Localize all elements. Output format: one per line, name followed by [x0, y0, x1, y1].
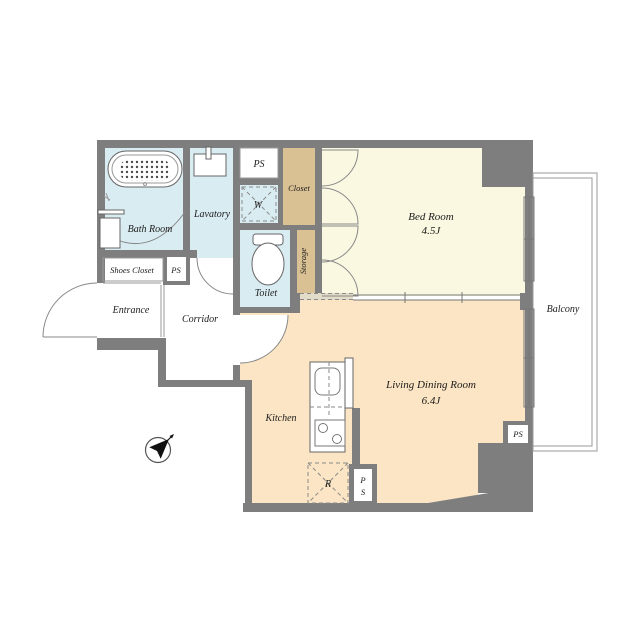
- corridor-label: Corridor: [182, 314, 218, 325]
- floor-plan-page: Bed Room 4.5J Living Dining Room 6.4J Ki…: [0, 0, 640, 640]
- wall-top: [97, 140, 482, 148]
- living-dining-label: Living Dining Room: [385, 379, 476, 391]
- lavatory-label: Lavatory: [193, 209, 231, 220]
- living-dining-size: 6.4J: [422, 395, 442, 407]
- north-compass-icon: [146, 434, 175, 463]
- kitchen-door-opening: [233, 315, 240, 365]
- wall-top-right-block: [482, 140, 533, 187]
- toilet-label: Toilet: [255, 288, 278, 299]
- closet-label: Closet: [288, 183, 310, 193]
- balcony-label: Balcony: [547, 304, 580, 315]
- wall-closet-bedroom: [315, 148, 322, 296]
- bed-room-label: Bed Room: [408, 211, 454, 223]
- kitchen-label: Kitchen: [264, 413, 296, 424]
- wall-corridor-bottom: [158, 380, 252, 387]
- pipe-space-kitchen-p: P: [359, 475, 365, 485]
- wall-left: [97, 148, 105, 283]
- storage-label: Storage: [298, 248, 308, 275]
- bathtub-icon: [108, 151, 182, 187]
- wall-storage-left: [290, 230, 297, 293]
- pipe-space-shoes-label: PS: [170, 265, 181, 275]
- bed-room-size: 4.5J: [422, 225, 442, 237]
- wall-ps-closet: [278, 143, 283, 230]
- shoes-closet-label: Shoes Closet: [110, 265, 154, 275]
- wall-ldk-left: [245, 387, 252, 503]
- pipe-space-right-label: PS: [512, 429, 523, 439]
- entrance-label: Entrance: [112, 305, 150, 316]
- pipe-space-top-label: PS: [252, 159, 264, 170]
- entrance-door: [43, 283, 97, 337]
- wall-bath-lavatory: [183, 148, 190, 250]
- wall-toilet-bottom: [233, 307, 300, 313]
- wall-ps-washer: [233, 178, 283, 185]
- wall-partition-end: [520, 293, 525, 310]
- wall-kitchen-band: [352, 408, 360, 470]
- wall-entrance-bottom: [97, 338, 166, 350]
- toilet-icon: [252, 234, 284, 285]
- refrigerator-label: R: [324, 479, 331, 490]
- wall-washer-toilet: [233, 223, 283, 230]
- lavatory-door: [197, 258, 233, 294]
- floor-plan-canvas: Bed Room 4.5J Living Dining Room 6.4J Ki…: [0, 0, 640, 640]
- wall-bottom-right-block: [478, 443, 533, 493]
- bath-room-label: Bath Room: [128, 224, 173, 235]
